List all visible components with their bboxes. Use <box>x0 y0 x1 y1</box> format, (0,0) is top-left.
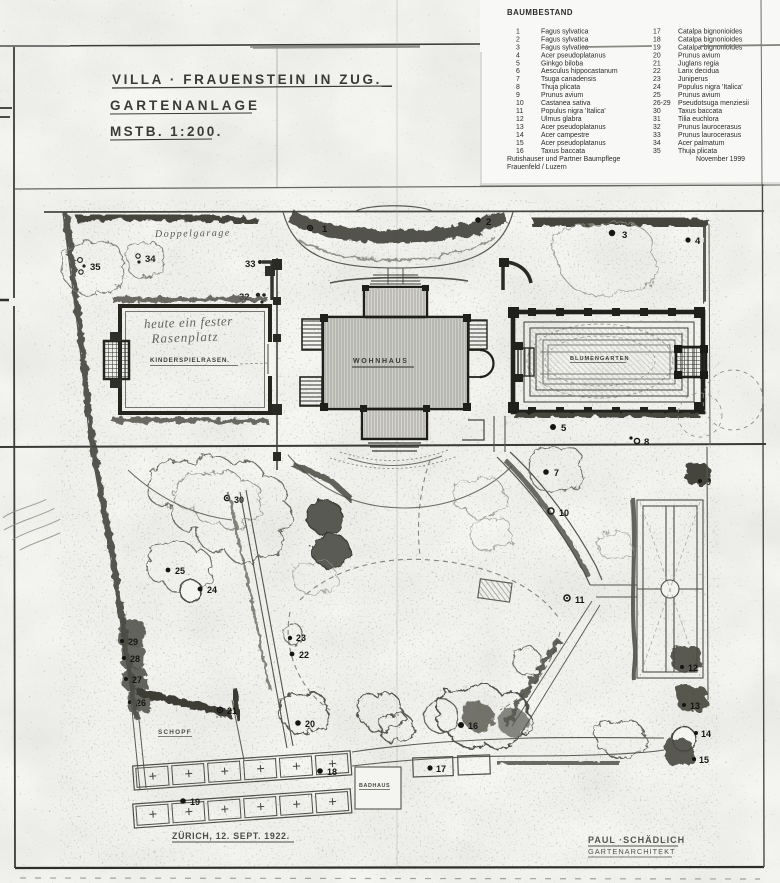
svg-text:ZÜRICH, 12. SEPT. 1922.: ZÜRICH, 12. SEPT. 1922. <box>172 831 290 841</box>
svg-text:30: 30 <box>653 108 661 115</box>
svg-text:14: 14 <box>516 132 524 139</box>
svg-text:18: 18 <box>653 37 661 44</box>
svg-text:Ginkgo biloba: Ginkgo biloba <box>541 60 583 67</box>
svg-text:28: 28 <box>130 654 140 664</box>
svg-text:heute ein fester: heute ein fester <box>144 313 234 331</box>
svg-text:1: 1 <box>516 29 520 36</box>
svg-text:WOHNHAUS: WOHNHAUS <box>353 358 409 365</box>
svg-text:27: 27 <box>132 675 142 685</box>
svg-text:VILLA · FRAUENSTEIN IN ZUG.: VILLA · FRAUENSTEIN IN ZUG. <box>112 72 382 87</box>
svg-text:32: 32 <box>653 124 661 131</box>
svg-text:Thuja plicata: Thuja plicata <box>678 148 717 155</box>
svg-text:BAUMBESTAND: BAUMBESTAND <box>507 8 573 17</box>
svg-text:15: 15 <box>699 755 709 765</box>
svg-text:Prunus laurocerasus: Prunus laurocerasus <box>678 124 742 131</box>
svg-text:22: 22 <box>299 650 309 660</box>
svg-text:23: 23 <box>296 633 306 643</box>
svg-text:Taxus baccata: Taxus baccata <box>678 108 722 115</box>
svg-text:19: 19 <box>190 797 200 807</box>
svg-text:2: 2 <box>486 217 491 228</box>
svg-text:8: 8 <box>516 84 520 91</box>
svg-text:MSTB. 1:200.: MSTB. 1:200. <box>110 124 223 139</box>
svg-text:Juglans regia: Juglans regia <box>678 60 719 67</box>
svg-text:Fagus sylvatica: Fagus sylvatica <box>541 44 589 51</box>
svg-text:Tilia euchlora: Tilia euchlora <box>678 116 719 123</box>
svg-text:7: 7 <box>516 76 520 83</box>
svg-text:33: 33 <box>245 259 256 270</box>
svg-text:23: 23 <box>653 76 661 83</box>
svg-text:Frauenfeld / Luzern: Frauenfeld / Luzern <box>507 164 567 171</box>
svg-text:KINDERSPIELRASEN.: KINDERSPIELRASEN. <box>150 357 230 364</box>
svg-text:Prunus avium: Prunus avium <box>678 52 720 59</box>
svg-text:Thuja plicata: Thuja plicata <box>541 84 580 91</box>
svg-text:Acer pseudoplatanus: Acer pseudoplatanus <box>541 52 606 59</box>
svg-text:15: 15 <box>516 140 524 147</box>
svg-text:Ulmus glabra: Ulmus glabra <box>541 116 582 123</box>
svg-text:31: 31 <box>653 116 661 123</box>
svg-text:25: 25 <box>653 92 661 99</box>
svg-text:Populus nigra 'Italica': Populus nigra 'Italica' <box>678 84 743 91</box>
svg-text:34: 34 <box>653 140 661 147</box>
svg-text:Tsuga canadensis: Tsuga canadensis <box>541 76 597 83</box>
svg-text:4: 4 <box>516 52 520 59</box>
svg-text:Acer campestre: Acer campestre <box>541 132 589 139</box>
svg-text:11: 11 <box>575 595 585 605</box>
svg-text:Taxus baccata: Taxus baccata <box>541 148 585 155</box>
svg-text:11: 11 <box>516 108 523 115</box>
svg-text:7: 7 <box>554 468 559 478</box>
svg-text:13: 13 <box>516 124 524 131</box>
svg-text:34: 34 <box>145 254 156 265</box>
svg-text:Rasenplatz: Rasenplatz <box>150 329 219 346</box>
svg-text:GARTENANLAGE: GARTENANLAGE <box>110 98 260 113</box>
svg-text:24: 24 <box>207 585 217 595</box>
svg-text:Prunus avium: Prunus avium <box>678 92 720 99</box>
svg-text:12: 12 <box>688 663 698 673</box>
svg-text:35: 35 <box>653 148 661 155</box>
svg-text:5: 5 <box>561 423 567 434</box>
svg-text:3: 3 <box>622 230 627 241</box>
svg-text:20: 20 <box>653 52 661 59</box>
svg-text:1: 1 <box>322 224 328 235</box>
svg-text:Prunus avium: Prunus avium <box>541 92 583 99</box>
svg-text:17: 17 <box>436 764 446 774</box>
svg-text:17: 17 <box>653 29 661 36</box>
svg-text:Catalpa bignonioides: Catalpa bignonioides <box>678 29 743 36</box>
svg-text:5: 5 <box>516 60 520 67</box>
svg-text:Doppelgarage: Doppelgarage <box>154 228 231 240</box>
svg-text:21: 21 <box>653 60 661 67</box>
svg-text:Castanea sativa: Castanea sativa <box>541 100 591 107</box>
svg-text:25: 25 <box>175 566 185 576</box>
svg-text:35: 35 <box>90 262 101 273</box>
svg-text:16: 16 <box>468 721 478 731</box>
svg-text:Larix decidua: Larix decidua <box>678 68 719 75</box>
svg-text:Rutishauser und Partner Baumpf: Rutishauser und Partner Baumpflege <box>507 156 621 163</box>
svg-text:Catalpa bignonioides: Catalpa bignonioides <box>678 37 743 44</box>
svg-text:16: 16 <box>516 148 524 155</box>
svg-text:20: 20 <box>305 719 315 729</box>
svg-text:22: 22 <box>653 68 661 75</box>
svg-text:2: 2 <box>516 37 520 44</box>
svg-text:SCHOPF: SCHOPF <box>158 729 192 736</box>
svg-text:Fagus sylvatica: Fagus sylvatica <box>541 29 589 36</box>
svg-text:21: 21 <box>227 706 237 716</box>
svg-text:Fagus sylvatica: Fagus sylvatica <box>541 37 589 44</box>
svg-text:Juniperus: Juniperus <box>678 76 708 83</box>
svg-text:10: 10 <box>516 100 524 107</box>
svg-text:Acer pseudoplatanus: Acer pseudoplatanus <box>541 140 606 147</box>
svg-text:14: 14 <box>701 729 711 739</box>
svg-text:10: 10 <box>559 508 569 518</box>
svg-text:Acer pseudoplatanus: Acer pseudoplatanus <box>541 124 606 131</box>
svg-text:Prunus laurocerasus: Prunus laurocerasus <box>678 132 742 139</box>
svg-text:Aesculus hippocastanum: Aesculus hippocastanum <box>541 68 618 75</box>
svg-text:12: 12 <box>516 116 524 123</box>
svg-text:13: 13 <box>690 701 700 711</box>
svg-text:BLUMENGARTEN: BLUMENGARTEN <box>570 356 630 362</box>
svg-text:3: 3 <box>516 44 520 51</box>
svg-text:BADHAUS: BADHAUS <box>359 783 390 789</box>
svg-text:Pseudotsuga menziesii: Pseudotsuga menziesii <box>678 100 749 107</box>
svg-text:26-29: 26-29 <box>653 100 671 107</box>
svg-text:6: 6 <box>516 68 520 75</box>
svg-text:November 1999: November 1999 <box>696 156 745 163</box>
svg-text:18: 18 <box>327 767 337 777</box>
svg-text:24: 24 <box>653 84 661 91</box>
svg-text:PAUL ·SCHÄDLICH: PAUL ·SCHÄDLICH <box>588 835 685 845</box>
svg-text:9: 9 <box>516 92 520 99</box>
svg-text:Acer palmatum: Acer palmatum <box>678 140 725 147</box>
svg-text:4: 4 <box>695 236 701 247</box>
svg-text:GARTENARCHITEKT: GARTENARCHITEKT <box>588 847 676 856</box>
svg-text:8: 8 <box>644 437 649 448</box>
svg-text:19: 19 <box>653 44 661 51</box>
svg-text:33: 33 <box>653 132 661 139</box>
svg-text:Populus nigra 'Italica': Populus nigra 'Italica' <box>541 108 606 115</box>
